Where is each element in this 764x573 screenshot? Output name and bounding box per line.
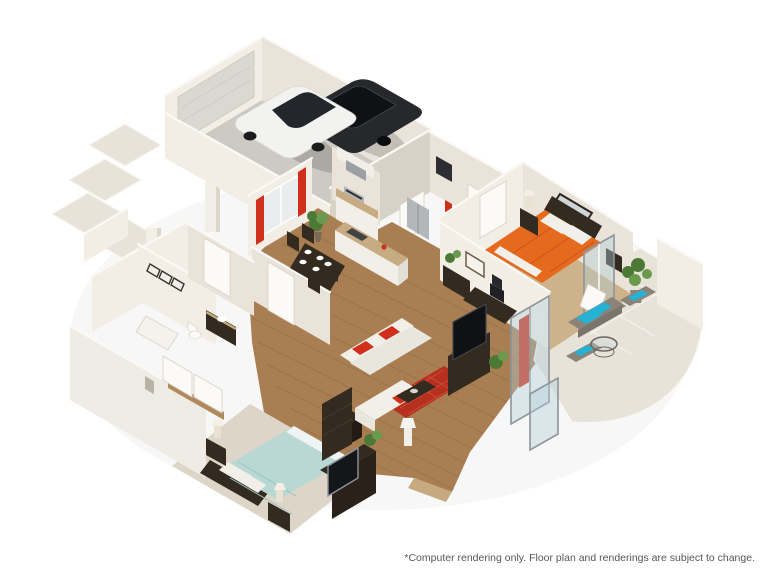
place-setting (299, 260, 306, 264)
walkway-tile (89, 124, 161, 166)
disclaimer-text: *Computer rendering only. Floor plan and… (404, 552, 755, 564)
tray (410, 389, 418, 393)
table-lamp (276, 490, 283, 502)
place-setting (304, 250, 311, 254)
plant (453, 250, 461, 258)
place-setting (316, 256, 323, 260)
place-setting (324, 262, 331, 266)
plant (498, 351, 508, 361)
floor-plant (372, 430, 382, 440)
red-curtain (298, 167, 306, 217)
flower-vase (381, 244, 386, 249)
place-setting (312, 267, 319, 271)
floor-plan-page: *Computer rendering only. Floor plan and… (0, 0, 764, 573)
walkway-tile (69, 159, 141, 201)
table-lamp (214, 426, 221, 438)
sink (217, 316, 227, 322)
red-curtain (256, 195, 264, 245)
floor-plan-rendering: *Computer rendering only. Floor plan and… (0, 0, 764, 573)
table-lamp (525, 196, 532, 208)
